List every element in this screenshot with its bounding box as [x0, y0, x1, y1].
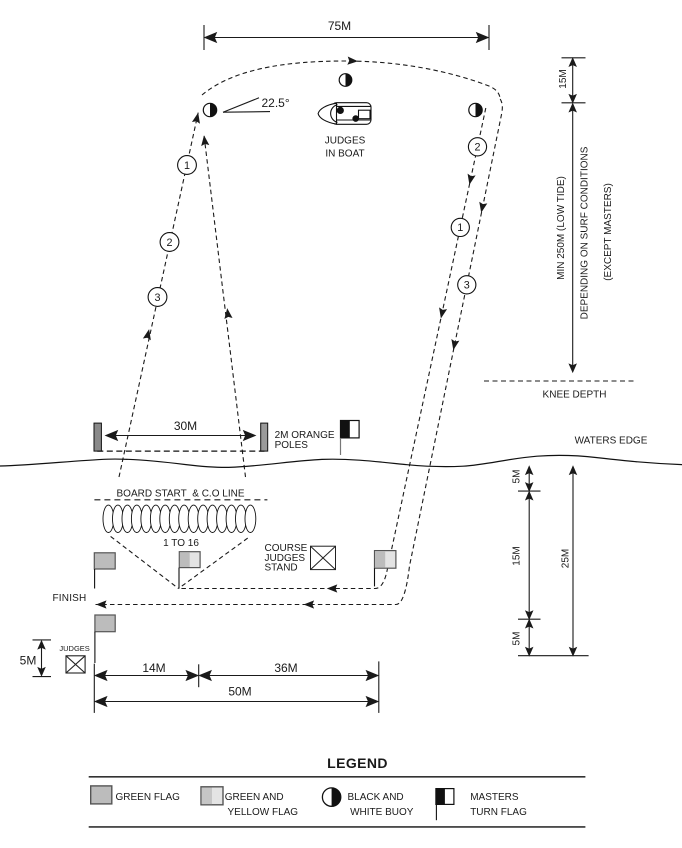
svg-text:JUDGES: JUDGES — [59, 644, 89, 653]
svg-text:5M: 5M — [512, 470, 523, 484]
svg-text:MIN 250M (LOW TIDE): MIN 250M (LOW TIDE) — [556, 176, 567, 280]
svg-text:DEPENDING ON SURF CONDITIONS: DEPENDING ON SURF CONDITIONS — [580, 146, 591, 319]
svg-text:15M: 15M — [512, 546, 523, 565]
svg-text:GREEN FLAG: GREEN FLAG — [116, 792, 181, 803]
svg-text:YELLOW FLAG: YELLOW FLAG — [228, 807, 299, 818]
svg-text:1: 1 — [457, 222, 463, 234]
svg-text:30M: 30M — [174, 419, 197, 433]
svg-text:5M: 5M — [20, 654, 37, 668]
svg-text:TURN FLAG: TURN FLAG — [470, 807, 527, 818]
svg-text:5M: 5M — [512, 632, 523, 646]
svg-text:36M: 36M — [274, 661, 297, 675]
svg-text:15M: 15M — [558, 69, 569, 88]
svg-text:1: 1 — [184, 160, 190, 172]
svg-text:BLACK AND: BLACK AND — [348, 792, 404, 803]
svg-text:(EXCEPT MASTERS): (EXCEPT MASTERS) — [603, 183, 614, 281]
svg-text:3: 3 — [154, 292, 160, 304]
svg-text:POLES: POLES — [275, 440, 309, 451]
svg-text:14M: 14M — [142, 661, 165, 675]
svg-text:2: 2 — [474, 142, 480, 154]
svg-text:75M: 75M — [328, 19, 351, 33]
svg-text:25M: 25M — [561, 549, 572, 568]
svg-text:IN BOAT: IN BOAT — [325, 149, 364, 160]
svg-text:3: 3 — [464, 280, 470, 292]
svg-text:1 TO 16: 1 TO 16 — [163, 538, 199, 549]
svg-text:FINISH: FINISH — [53, 593, 87, 604]
svg-text:KNEE DEPTH: KNEE DEPTH — [543, 390, 607, 401]
svg-text:2: 2 — [166, 237, 172, 249]
svg-text:MASTERS: MASTERS — [470, 792, 519, 803]
svg-text:WATERS EDGE: WATERS EDGE — [575, 436, 648, 447]
svg-text:50M: 50M — [228, 685, 251, 699]
svg-text:WHITE BUOY: WHITE BUOY — [350, 807, 414, 818]
svg-text:STAND: STAND — [265, 563, 298, 574]
svg-text:22.5°: 22.5° — [262, 96, 290, 110]
svg-text:BOARD START & C.O LINE: BOARD START & C.O LINE — [117, 489, 245, 500]
svg-text:GREEN AND: GREEN AND — [225, 792, 284, 803]
svg-text:JUDGES: JUDGES — [325, 136, 366, 147]
svg-text:LEGEND: LEGEND — [327, 755, 388, 771]
